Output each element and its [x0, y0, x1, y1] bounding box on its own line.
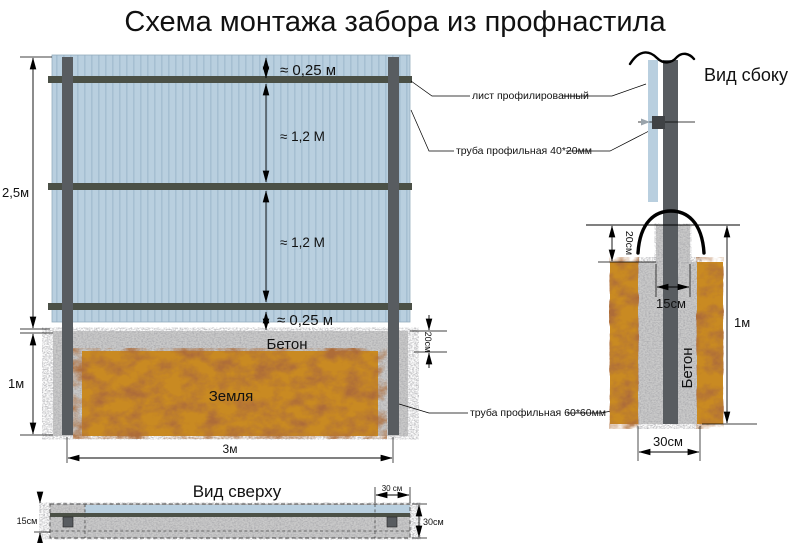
- rail-top: [48, 76, 412, 83]
- earth-label: Земля: [209, 388, 254, 405]
- fence-installation-scheme: Схема монтажа забора из профнастила Бето…: [0, 0, 790, 543]
- side-view-title: Вид сбоку: [704, 65, 788, 85]
- dim-half-width-label: 15см: [17, 516, 38, 526]
- front-view: Бетон Земля ≈ 0,25 м ≈ 1,2 М ≈ 1,2 М ≈ 0…: [2, 55, 447, 463]
- dim-depth-label: 1м: [734, 315, 750, 330]
- dim-collar-label: 20см: [623, 231, 635, 255]
- side-view: Вид сбоку Бетон 20см 15см: [586, 52, 788, 461]
- dim-panel1-label: ≈ 1,2 М: [280, 129, 325, 144]
- dim-span-label: 3м: [223, 442, 238, 456]
- height-dimension: 2,5м: [2, 57, 52, 329]
- rail-middle: [48, 183, 412, 190]
- plan-post-right: [387, 517, 397, 527]
- break-line: [630, 52, 694, 64]
- page-title: Схема монтажа забора из профнастила: [124, 6, 666, 38]
- earth-right: [697, 262, 723, 424]
- pier-width-dimension: 30см: [638, 426, 700, 461]
- post-right: [388, 57, 399, 435]
- top-view-title: Вид сверху: [193, 482, 282, 501]
- earth-left: [610, 262, 638, 424]
- rail-bottom: [48, 303, 412, 310]
- top-view: Вид сверху 15см 30 см 30см: [17, 482, 444, 543]
- dim-concrete-layer-label: 20см: [423, 332, 433, 353]
- plan-half-width-dimension: 15см: [17, 494, 50, 543]
- plan-post-left: [63, 517, 73, 527]
- dim-post-zone-label: 30 см: [382, 484, 403, 493]
- dim-bottom-gap-label: ≈ 0,25 м: [277, 312, 333, 329]
- dim-strip-width-label: 30см: [423, 517, 444, 527]
- rail-connector: [652, 116, 665, 129]
- dim-width-label: 30см: [653, 434, 683, 449]
- dim-panel2-label: ≈ 1,2 М: [280, 235, 325, 250]
- post-side: [663, 60, 678, 424]
- sheet-edge: [648, 60, 658, 202]
- dim-height-label: 2,5м: [2, 185, 29, 200]
- collar-dimension: 20см: [598, 226, 656, 262]
- diagram-canvas: Схема монтажа забора из профнастила Бето…: [0, 0, 790, 543]
- span-dimension: 3м: [67, 437, 393, 463]
- dim-hole-label: 15см: [656, 296, 686, 311]
- dim-top-gap-label: ≈ 0,25 м: [280, 62, 336, 79]
- concrete-label: Бетон: [266, 336, 307, 353]
- pier-concrete-label: Бетон: [679, 347, 696, 388]
- depth-dimension: 1м: [8, 333, 53, 435]
- plan-strip-width-dimension: 30см: [412, 504, 444, 538]
- dim-foundation-depth-label: 1м: [8, 376, 24, 391]
- concrete-layer-dimension: 20см: [410, 315, 447, 368]
- plan-post-zone-dimension: 30 см: [375, 484, 410, 503]
- plan-sheet: [85, 505, 410, 513]
- post-left: [62, 57, 73, 435]
- plan-rail: [50, 513, 410, 517]
